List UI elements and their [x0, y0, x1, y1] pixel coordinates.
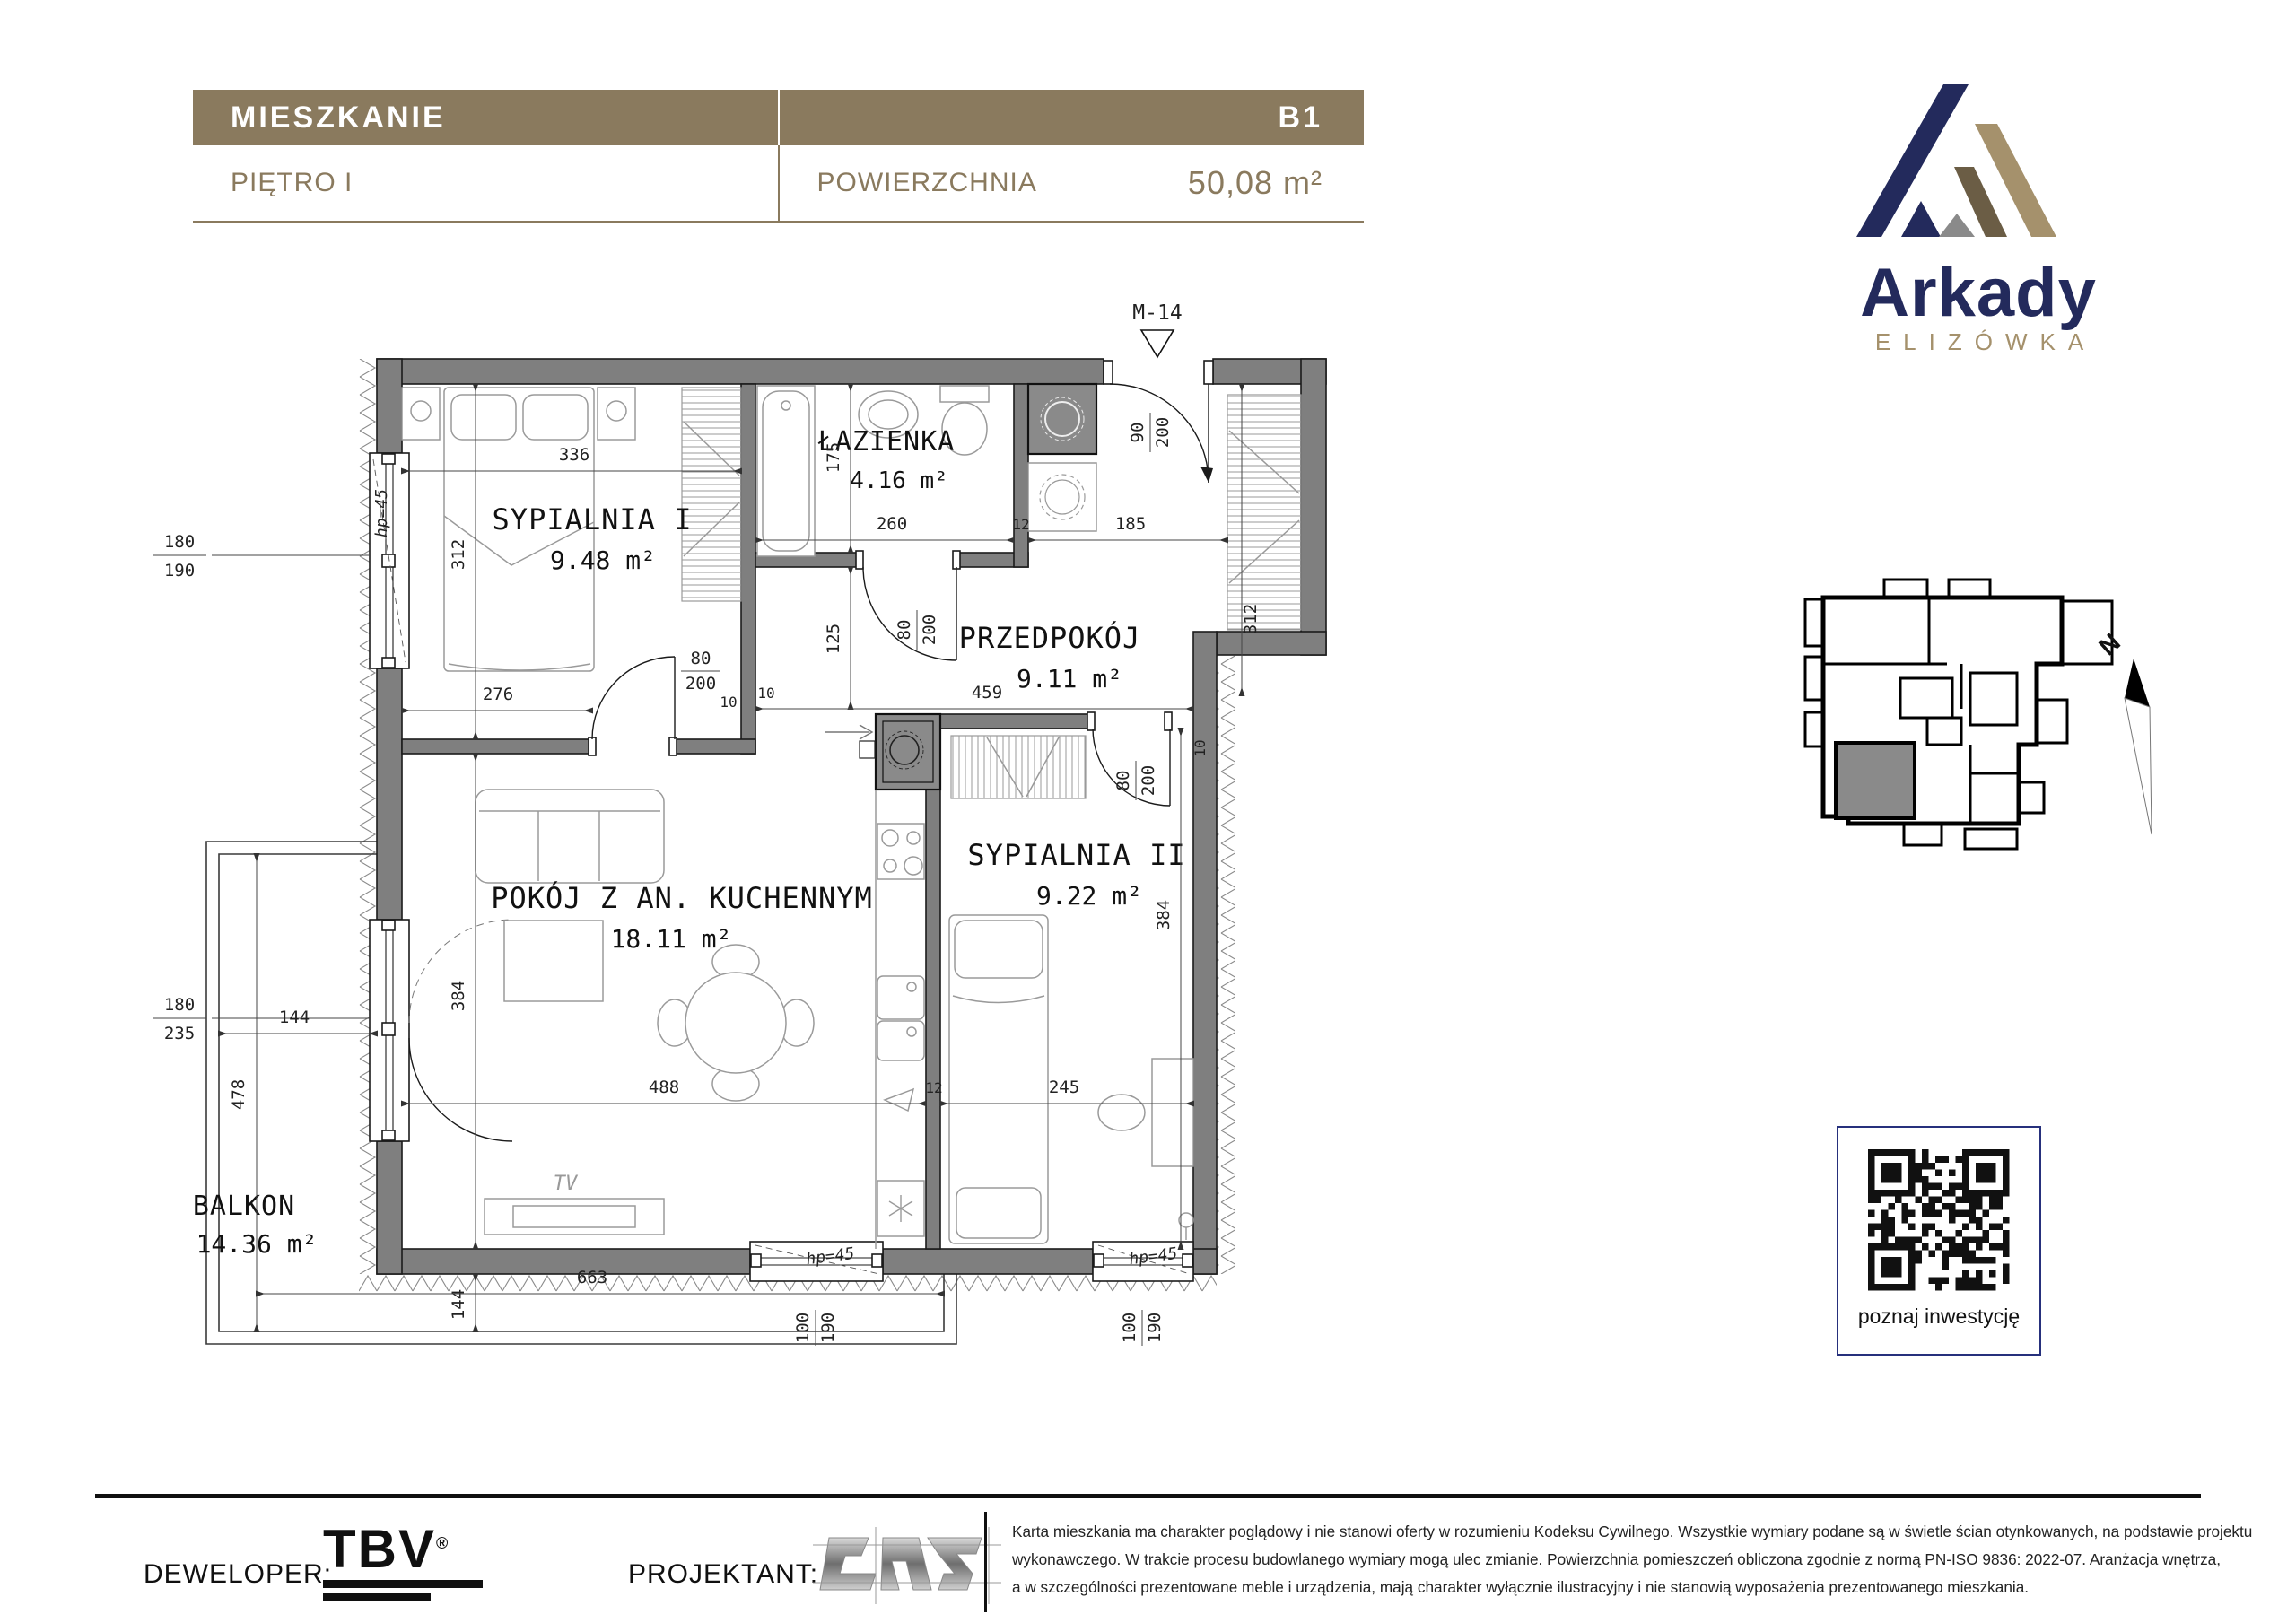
svg-text:200: 200: [1153, 417, 1173, 448]
apartment-title: MIESZKANIE: [193, 100, 446, 135]
header-right-column: B1 POWIERZCHNIA 50,08 m²: [778, 90, 1365, 221]
developer-logo: TBV®: [323, 1518, 529, 1601]
svg-text:90: 90: [1128, 423, 1148, 443]
tv-bench: TV: [485, 1173, 664, 1235]
window-bedroom1: hp=45: [370, 453, 409, 668]
room-name-bedroom2: SYPIALNIA II: [967, 838, 1185, 872]
door-size-bedroom1: 80 200 10: [681, 649, 738, 711]
svg-text:180: 180: [164, 995, 195, 1015]
window-size-bedroom2: 100 190: [1120, 1310, 1165, 1346]
svg-text:100: 100: [1120, 1313, 1139, 1343]
svg-text:663: 663: [577, 1268, 607, 1287]
svg-text:336: 336: [559, 445, 589, 465]
wardrobe-bedroom2: [951, 736, 1086, 798]
svg-text:384: 384: [449, 981, 468, 1011]
window-living: hp=45: [750, 1242, 883, 1281]
disclaimer-line-1: Karta mieszkania ma charakter poglądowy …: [1012, 1518, 2205, 1546]
qr-caption: poznaj inwestycję: [1838, 1305, 2039, 1329]
entry-arrow-icon: [825, 725, 872, 739]
developer-label: DEWELOPER:: [144, 1559, 332, 1590]
floor-plan: hp=45 hp=45 hp=45: [90, 287, 1418, 1418]
svg-text:M-14: M-14: [1132, 301, 1182, 325]
window-size-living: 100 190: [793, 1310, 838, 1346]
svg-text:245: 245: [1049, 1078, 1079, 1097]
kitchen-counter: [876, 790, 924, 1249]
window-size-bedroom1: 180 190: [153, 532, 370, 580]
window-bedroom2: hp=45: [1093, 1242, 1193, 1281]
room-name-balcony: BALKON: [193, 1191, 295, 1222]
balcony-door: [370, 920, 512, 1141]
architect-logo: [813, 1518, 1001, 1608]
svg-text:488: 488: [649, 1078, 679, 1097]
apartment-card-page: MIESZKANIE PIĘTRO I B1 POWIERZCHNIA 50,0…: [0, 0, 2296, 1623]
utility-shaft: [1028, 384, 1096, 454]
svg-text:235: 235: [164, 1024, 195, 1043]
furniture-bedroom2: [949, 736, 1193, 1243]
tbv-bar-2: [323, 1593, 431, 1601]
tbv-wordmark: TBV: [323, 1519, 436, 1579]
svg-text:478: 478: [229, 1079, 249, 1110]
svg-text:190: 190: [164, 561, 195, 580]
svg-text:200: 200: [920, 615, 939, 645]
door-size-bathroom: 80 200: [895, 610, 939, 650]
brand-name: Arkady: [1860, 255, 2097, 331]
room-area-hall: 9.11 m²: [1017, 664, 1122, 694]
area-label: POWIERZCHNIA: [780, 168, 1037, 198]
window-size-balcony-door: 180 235: [153, 995, 370, 1043]
brand-subtitle: ELIZÓWKA: [1875, 328, 2096, 355]
svg-text:80: 80: [691, 649, 711, 668]
header-left-column: MIESZKANIE PIĘTRO I: [193, 90, 778, 221]
furniture-living: TV: [476, 790, 924, 1249]
svg-text:190: 190: [818, 1313, 838, 1343]
arkady-logo: Arkady ELIZÓWKA: [1772, 79, 2185, 357]
svg-text:276: 276: [483, 685, 513, 704]
tbv-bar-1: [323, 1580, 483, 1588]
disclaimer-line-3: a w szczególności prezentowane meble i u…: [1012, 1574, 2205, 1601]
svg-text:200: 200: [685, 674, 716, 694]
svg-text:459: 459: [972, 683, 1002, 702]
room-area-bedroom2: 9.22 m²: [1036, 881, 1142, 911]
wardrobe-bedroom1: [682, 388, 741, 601]
door-bathroom: [856, 551, 960, 660]
room-area-living: 18.11 m²: [611, 924, 732, 954]
unit-number: B1: [1279, 100, 1364, 135]
svg-text:TV: TV: [554, 1173, 579, 1195]
fridge-icon: [877, 1181, 924, 1236]
svg-text:312: 312: [1241, 604, 1261, 634]
svg-text:12: 12: [925, 1079, 942, 1096]
svg-text:12: 12: [1012, 516, 1029, 533]
svg-text:100: 100: [793, 1313, 813, 1343]
svg-text:180: 180: [164, 532, 195, 552]
svg-text:144: 144: [279, 1008, 310, 1027]
registered-mark: ®: [436, 1534, 450, 1552]
dining-table: [658, 945, 814, 1101]
qr-code: [1868, 1149, 2010, 1291]
room-name-bedroom1: SYPIALNIA I: [493, 502, 693, 537]
area-row: POWIERZCHNIA 50,08 m²: [778, 145, 1365, 221]
door-size-entrance: 90 200: [1128, 413, 1173, 452]
building-outline: [1805, 580, 2112, 849]
room-name-hall: PRZEDPOKÓJ: [959, 620, 1141, 655]
footer-vertical-divider: [984, 1512, 987, 1612]
svg-text:10: 10: [757, 685, 774, 702]
svg-text:384: 384: [1154, 900, 1174, 930]
arkady-triangle-icon: [1856, 84, 2056, 237]
highlighted-unit: [1836, 743, 1915, 818]
svg-text:175: 175: [824, 442, 843, 473]
room-area-bathroom: 4.16 m²: [850, 467, 948, 494]
unit-marker: M-14: [1132, 301, 1182, 357]
floor-label: PIĘTRO I: [193, 168, 353, 198]
door-bedroom1: [589, 657, 677, 755]
header-table: MIESZKANIE PIĘTRO I B1 POWIERZCHNIA 50,0…: [193, 90, 1364, 223]
room-name-living: POKÓJ Z AN. KUCHENNYM: [491, 880, 873, 915]
floor-row: PIĘTRO I: [193, 145, 778, 221]
disclaimer: Karta mieszkania ma charakter poglądowy …: [1012, 1518, 2205, 1601]
kitchen-shaft: [860, 714, 940, 790]
designer-label: PROJEKTANT:: [628, 1559, 818, 1590]
svg-text:125: 125: [824, 624, 843, 654]
apartment-title-bar: MIESZKANIE: [193, 90, 778, 145]
svg-text:80: 80: [895, 620, 914, 641]
building-locator: N: [1794, 565, 2180, 861]
svg-text:312: 312: [449, 539, 468, 570]
svg-text:10: 10: [1192, 739, 1209, 756]
svg-text:10: 10: [720, 694, 737, 711]
door-size-bedroom2: 80 200: [1113, 761, 1158, 800]
footer-divider: [95, 1494, 2201, 1498]
room-area-bedroom1: 9.48 m²: [550, 545, 656, 575]
window-height-label: hp=45: [372, 489, 391, 537]
svg-text:190: 190: [1145, 1313, 1165, 1343]
svg-text:260: 260: [877, 514, 907, 534]
svg-text:185: 185: [1115, 514, 1146, 534]
svg-text:80: 80: [1113, 771, 1133, 791]
unit-bar: B1: [780, 90, 1365, 145]
dryer-icon: [1028, 463, 1096, 531]
svg-text:200: 200: [1139, 765, 1158, 796]
qr-panel: poznaj inwestycję: [1837, 1126, 2041, 1356]
disclaimer-line-2: wykonawczego. W trakcie procesu budowlan…: [1012, 1546, 2205, 1574]
area-value: 50,08 m²: [1188, 164, 1364, 202]
wardrobe-entrance: [1227, 395, 1301, 630]
